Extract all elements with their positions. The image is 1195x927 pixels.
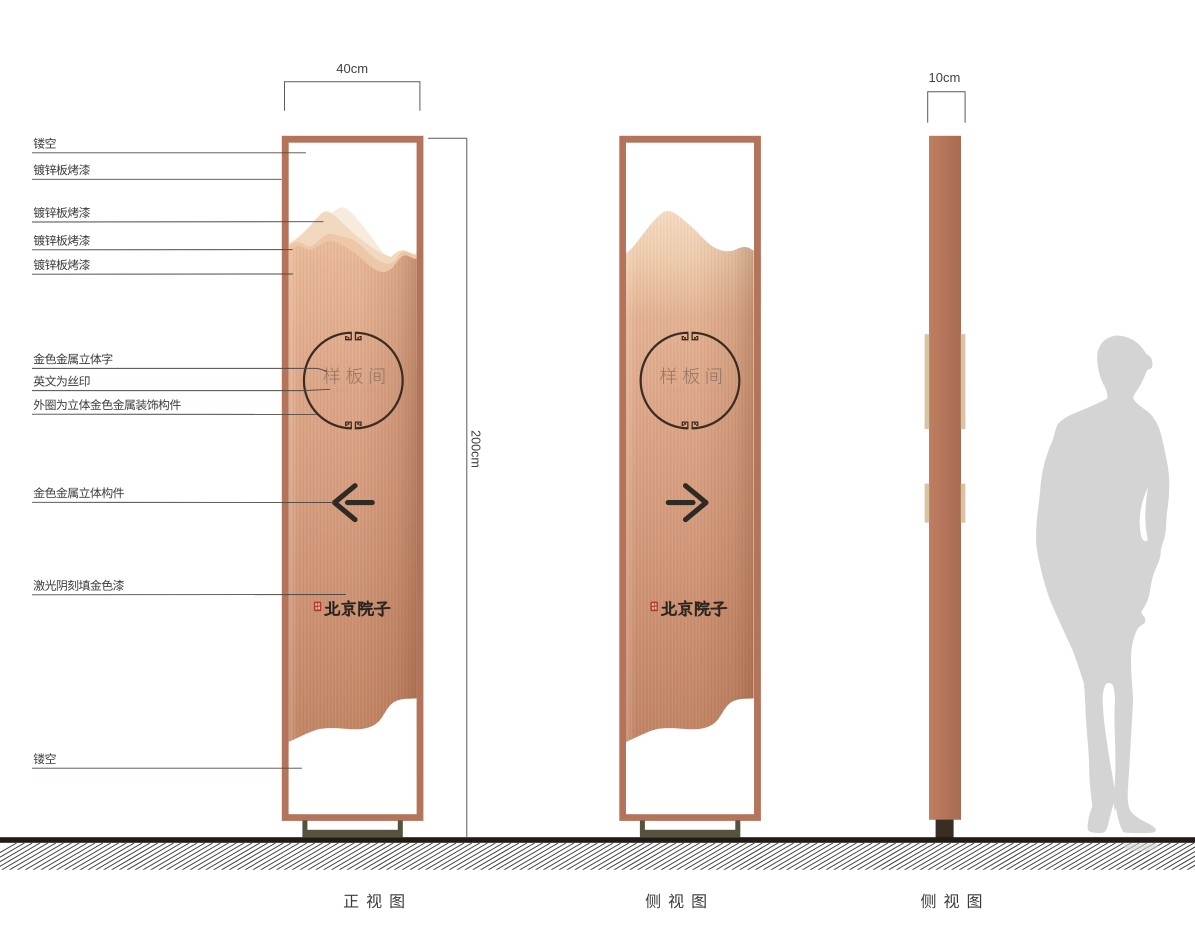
svg-text:SAMPLE ROOM: SAMPLE ROOM <box>667 389 719 395</box>
svg-text:200cm: 200cm <box>468 430 482 468</box>
svg-text:10cm: 10cm <box>929 70 961 85</box>
svg-text:40cm: 40cm <box>336 61 368 76</box>
svg-text:SAMPLE ROOM: SAMPLE ROOM <box>331 389 383 395</box>
